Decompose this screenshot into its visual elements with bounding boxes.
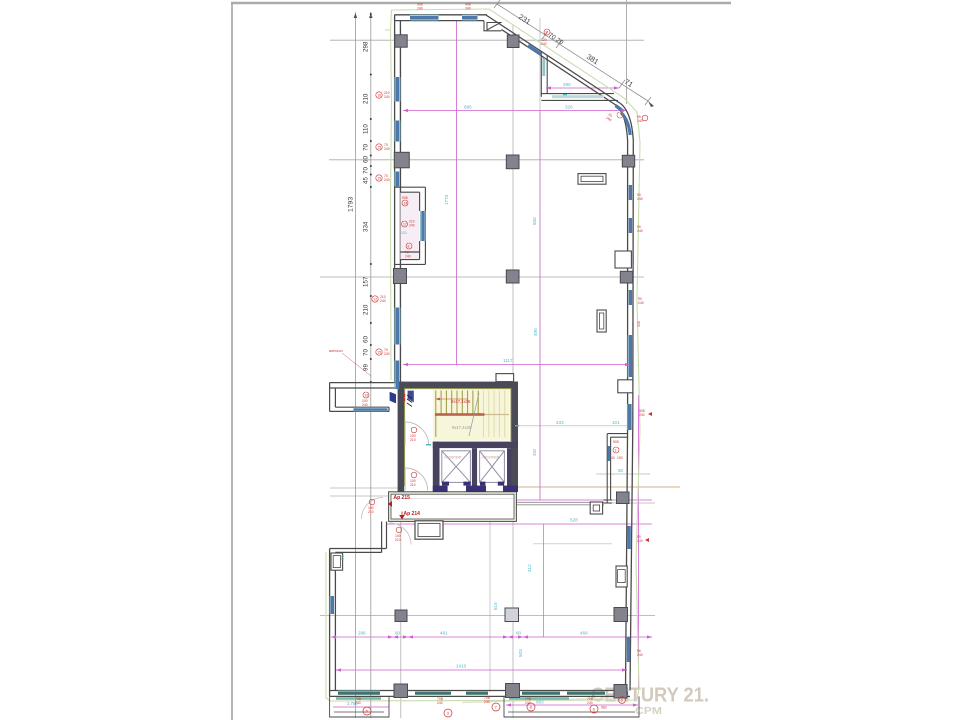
- svg-text:101: 101: [612, 420, 620, 425]
- svg-text:15: 15: [365, 393, 369, 397]
- svg-text:308: 308: [637, 321, 641, 327]
- svg-text:240: 240: [637, 653, 643, 657]
- svg-text:695: 695: [464, 105, 472, 110]
- svg-text:210: 210: [363, 93, 370, 104]
- svg-text:157: 157: [363, 276, 370, 287]
- svg-text:16: 16: [377, 93, 381, 97]
- svg-text:1410: 1410: [456, 664, 467, 669]
- svg-text:1793: 1793: [348, 197, 355, 212]
- svg-text:908: 908: [613, 440, 619, 444]
- svg-text:45: 45: [363, 177, 370, 184]
- svg-text:240: 240: [639, 413, 645, 417]
- svg-text:210: 210: [363, 304, 370, 315]
- svg-text:240: 240: [409, 224, 415, 228]
- svg-text:240: 240: [384, 352, 390, 356]
- svg-text:240: 240: [541, 42, 547, 46]
- svg-text:433: 433: [556, 420, 564, 425]
- svg-text:anexcon: anexcon: [329, 349, 343, 353]
- svg-text:210: 210: [410, 483, 416, 487]
- svg-text:40: 40: [611, 456, 615, 460]
- svg-text:14: 14: [404, 201, 408, 205]
- svg-text:240: 240: [384, 178, 390, 182]
- svg-text:250: 250: [532, 448, 537, 456]
- svg-text:60: 60: [363, 336, 370, 343]
- svg-text:99: 99: [340, 554, 345, 560]
- svg-text:295: 295: [563, 82, 571, 87]
- svg-text:500: 500: [532, 217, 537, 225]
- svg-text:240: 240: [484, 700, 490, 704]
- svg-text:908: 908: [402, 196, 408, 200]
- svg-text:412: 412: [527, 564, 532, 572]
- svg-text:240: 240: [465, 7, 471, 11]
- svg-text:17: 17: [403, 222, 407, 226]
- svg-text:110: 110: [363, 124, 370, 134]
- svg-text:240: 240: [380, 299, 386, 303]
- svg-text:528: 528: [570, 518, 578, 523]
- svg-text:120: 120: [401, 231, 407, 235]
- svg-text:9x17,4x28: 9x17,4x28: [451, 399, 471, 404]
- svg-text:190: 190: [617, 456, 623, 460]
- svg-text:490: 490: [533, 328, 538, 336]
- svg-text:240: 240: [637, 229, 643, 233]
- svg-text:468: 468: [580, 631, 588, 636]
- svg-text:210: 210: [410, 438, 416, 442]
- svg-text:240: 240: [362, 403, 368, 407]
- svg-text:Ascensor: Ascensor: [482, 455, 500, 460]
- svg-text:240: 240: [637, 119, 643, 123]
- svg-text:240: 240: [417, 7, 423, 11]
- svg-text:491: 491: [440, 631, 448, 636]
- svg-text:70: 70: [363, 167, 370, 174]
- svg-text:3: 3: [615, 448, 617, 452]
- svg-text:296: 296: [358, 631, 366, 636]
- svg-text:240: 240: [637, 539, 643, 543]
- svg-text:983: 983: [601, 706, 607, 710]
- svg-text:240: 240: [384, 95, 390, 99]
- svg-text:210: 210: [395, 538, 401, 542]
- svg-text:334: 334: [363, 221, 370, 232]
- svg-text:326: 326: [565, 105, 573, 110]
- svg-text:503: 503: [518, 649, 523, 657]
- svg-text:Ap 215: Ap 215: [394, 495, 411, 501]
- svg-text:298: 298: [363, 41, 370, 52]
- svg-text:50: 50: [618, 468, 624, 473]
- svg-text:210: 210: [368, 510, 374, 514]
- svg-text:240: 240: [637, 197, 643, 201]
- svg-text:9x17,4x28: 9x17,4x28: [452, 425, 472, 430]
- svg-text:Ap 214: Ap 214: [404, 511, 421, 517]
- svg-text:70: 70: [363, 144, 370, 151]
- svg-text:240: 240: [437, 701, 443, 705]
- svg-text:983: 983: [536, 700, 544, 705]
- svg-text:240: 240: [638, 301, 644, 305]
- svg-text:240: 240: [587, 701, 593, 705]
- svg-text:240: 240: [355, 701, 361, 705]
- svg-text:240: 240: [384, 147, 390, 151]
- svg-text:615: 615: [493, 602, 498, 610]
- svg-text:60: 60: [395, 631, 401, 636]
- svg-text:CENTURY 21.: CENTURY 21.: [591, 684, 709, 707]
- svg-text:15: 15: [377, 145, 381, 149]
- svg-text:12: 12: [373, 297, 377, 301]
- svg-text:60: 60: [516, 631, 522, 636]
- svg-text:8: 8: [408, 244, 410, 248]
- svg-text:240: 240: [405, 255, 411, 259]
- svg-text:1117: 1117: [503, 358, 513, 363]
- svg-text:60: 60: [363, 156, 370, 163]
- svg-text:1773: 1773: [444, 194, 449, 205]
- svg-text:70: 70: [363, 349, 370, 356]
- svg-text:9: 9: [546, 30, 548, 34]
- svg-text:15: 15: [377, 350, 381, 354]
- svg-text:Ascensor: Ascensor: [444, 455, 462, 460]
- svg-text:15: 15: [377, 176, 381, 180]
